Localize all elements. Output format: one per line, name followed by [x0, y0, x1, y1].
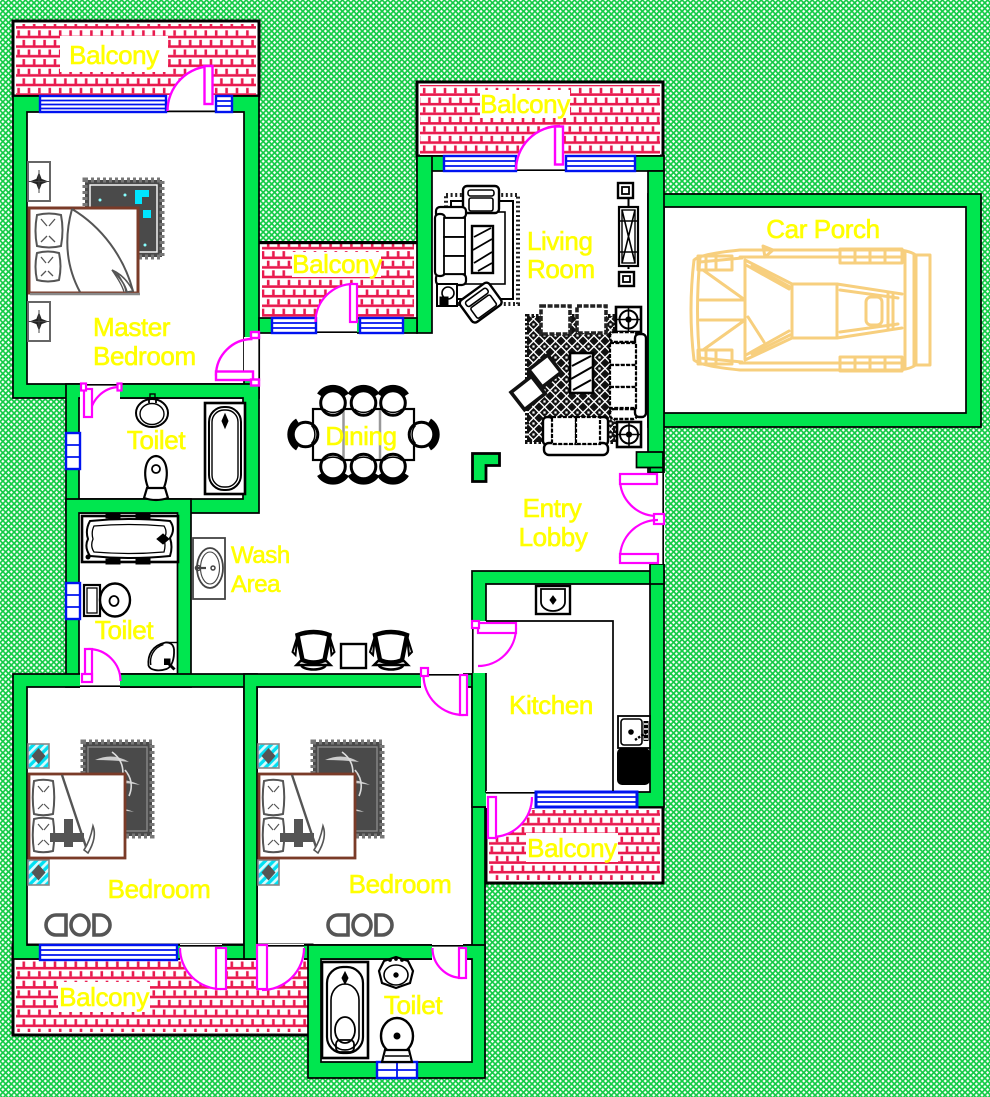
svg-text:Room: Room — [527, 254, 595, 284]
svg-text:Toilet: Toilet — [384, 990, 443, 1020]
svg-text:Kitchen: Kitchen — [509, 690, 593, 720]
svg-text:Bedroom: Bedroom — [349, 869, 452, 899]
svg-text:Area: Area — [231, 571, 281, 598]
svg-text:Bedroom: Bedroom — [93, 341, 196, 371]
svg-text:Balcony: Balcony — [69, 40, 159, 70]
svg-text:Bedroom: Bedroom — [108, 874, 211, 904]
svg-text:Toilet: Toilet — [127, 425, 186, 455]
svg-text:Lobby: Lobby — [519, 522, 588, 552]
svg-text:Master: Master — [93, 312, 171, 342]
svg-text:Wash: Wash — [231, 542, 290, 569]
svg-text:Balcony: Balcony — [480, 89, 570, 119]
svg-text:Entry: Entry — [523, 493, 582, 523]
svg-text:Balcony: Balcony — [292, 249, 382, 279]
svg-text:Toilet: Toilet — [95, 615, 154, 645]
svg-text:Balcony: Balcony — [59, 982, 149, 1012]
svg-text:Car Porch: Car Porch — [766, 214, 879, 244]
svg-text:Dining: Dining — [325, 421, 396, 451]
svg-text:Balcony: Balcony — [527, 833, 617, 863]
svg-text:Living: Living — [527, 226, 593, 256]
